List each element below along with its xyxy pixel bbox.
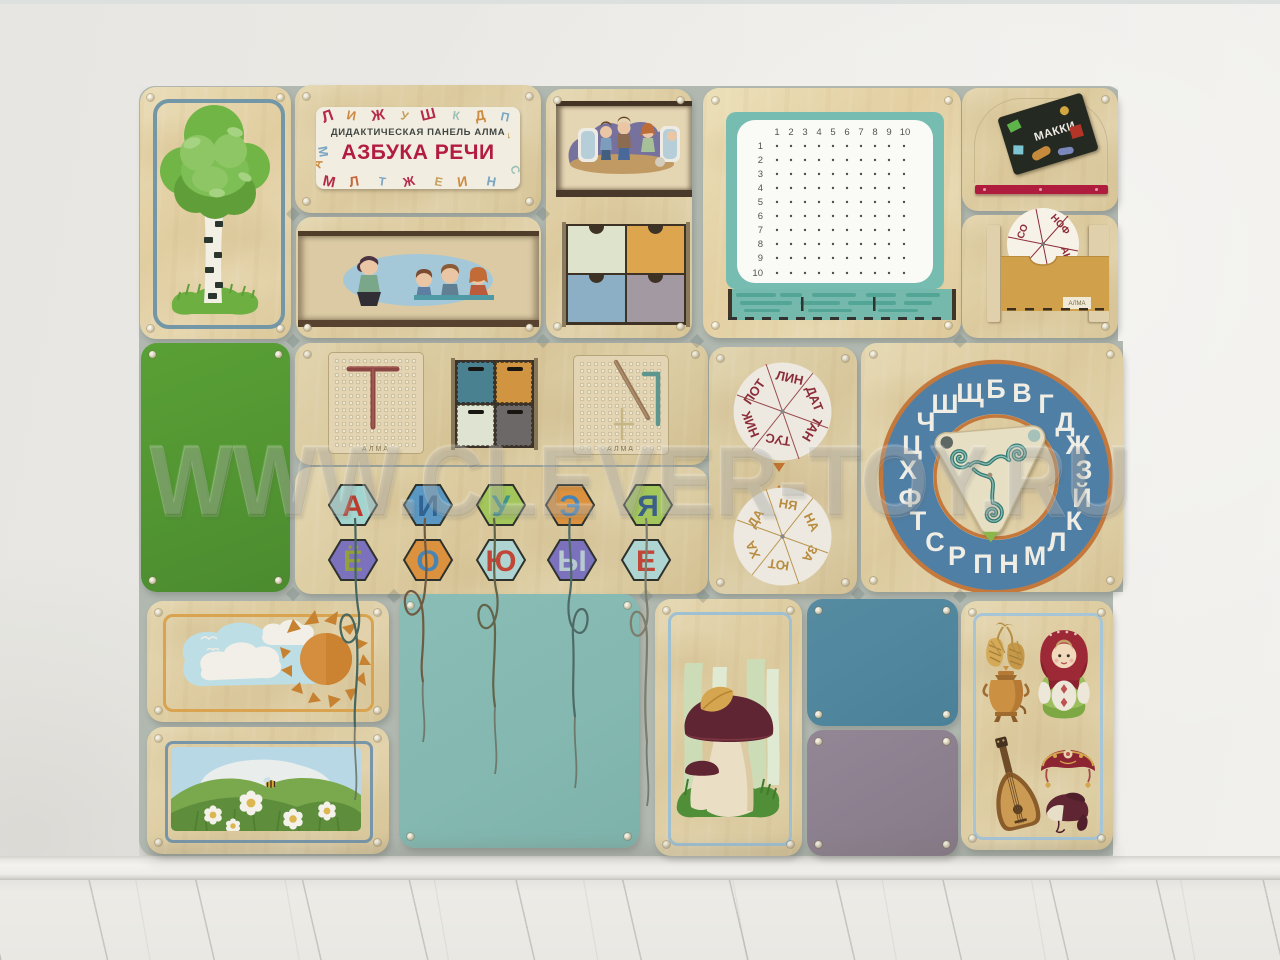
svg-text:3: 3 (758, 169, 763, 180)
svg-text:7: 7 (758, 225, 763, 236)
svg-text:2: 2 (758, 155, 763, 166)
svg-text:П: П (499, 109, 510, 124)
svg-text:Б: Б (986, 374, 1005, 404)
svg-text:Д: Д (474, 107, 487, 124)
svg-text:1: 1 (774, 127, 779, 138)
svg-text:8: 8 (758, 239, 763, 250)
svg-text:К: К (452, 108, 462, 123)
svg-text:5: 5 (830, 127, 835, 138)
svg-text:С: С (507, 163, 520, 176)
svg-text:Ж: Ж (401, 173, 417, 189)
svg-text:Ш: Ш (419, 107, 438, 125)
svg-text:3: 3 (802, 127, 807, 138)
svg-text:6: 6 (844, 127, 849, 138)
svg-text:10: 10 (752, 268, 763, 279)
svg-text:Г: Г (1038, 389, 1053, 419)
svg-text:ЮТ: ЮТ (767, 556, 790, 574)
svg-text:2: 2 (788, 127, 793, 138)
svg-text:В: В (1012, 378, 1032, 408)
svg-text:М: М (321, 172, 337, 189)
svg-text:Ш: Ш (931, 389, 958, 419)
svg-text:АЛМА: АЛМА (1068, 301, 1085, 307)
svg-text:Л: Л (320, 107, 336, 127)
svg-text:У: У (399, 108, 410, 124)
svg-text:И: И (456, 173, 468, 189)
svg-text:И: И (345, 107, 357, 123)
svg-text:Т: Т (378, 174, 388, 189)
svg-text:8: 8 (872, 127, 877, 138)
svg-text:П: П (973, 549, 992, 579)
svg-text:Е: Е (433, 174, 443, 189)
svg-text:М: М (1024, 541, 1047, 571)
svg-text:Р: Р (948, 541, 966, 571)
svg-text:4: 4 (758, 183, 763, 194)
svg-text:9: 9 (886, 127, 891, 138)
svg-text:7: 7 (858, 127, 863, 138)
svg-text:Н: Н (999, 549, 1019, 579)
svg-text:6: 6 (758, 211, 763, 222)
svg-text:10: 10 (900, 127, 911, 138)
svg-text:Щ: Щ (956, 378, 984, 408)
svg-text:Н: Н (485, 173, 497, 189)
svg-text:Ж: Ж (369, 107, 386, 125)
svg-text:4: 4 (816, 127, 821, 138)
svg-text:Л: Л (348, 172, 360, 189)
svg-text:1: 1 (758, 141, 763, 152)
svg-text:5: 5 (758, 197, 763, 208)
svg-text:9: 9 (758, 253, 763, 264)
